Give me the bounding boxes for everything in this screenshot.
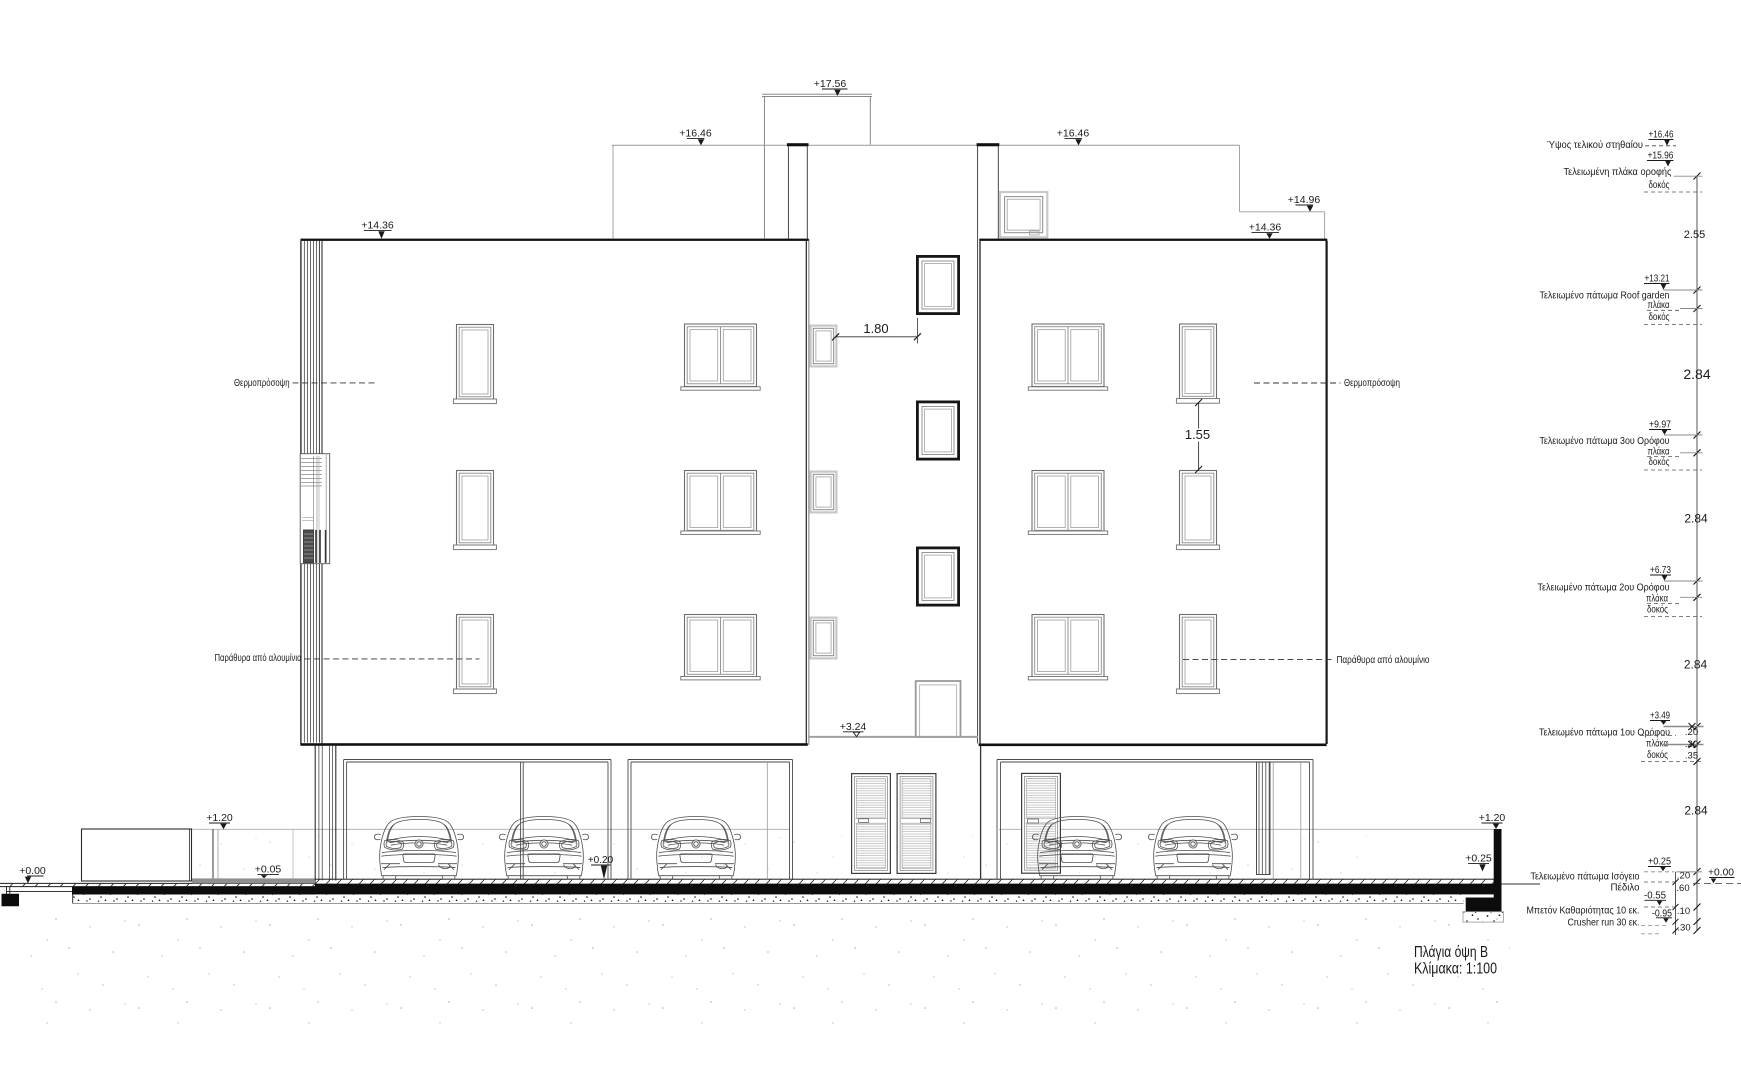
svg-text:Crusher run 30 εκ.: Crusher run 30 εκ. — [1568, 918, 1640, 929]
svg-text:2.84: 2.84 — [1684, 658, 1708, 672]
svg-text:Τελειωμένο πάτωμα 3ου Ορόφου: Τελειωμένο πάτωμα 3ου Ορόφου — [1540, 435, 1670, 447]
svg-text:2.84: 2.84 — [1684, 804, 1708, 818]
svg-text:+0.25: +0.25 — [1648, 857, 1671, 868]
svg-text:Τελειωμένο πάτωμα 1ου Ορόφου: Τελειωμένο πάτωμα 1ου Ορόφου — [1539, 727, 1670, 739]
svg-text:Τελειωμένη πλάκα οροφής: Τελειωμένη πλάκα οροφής — [1564, 166, 1672, 178]
svg-text:Μπετόν Καθαριότητας 10 εκ.: Μπετόν Καθαριότητας 10 εκ. — [1527, 905, 1640, 917]
svg-text:2.84: 2.84 — [1684, 512, 1708, 526]
svg-text:.20: .20 — [1685, 727, 1698, 738]
svg-text:δοκός: δοκός — [1649, 456, 1670, 468]
svg-text:Ύψος τελικού στηθαίου: Ύψος τελικού στηθαίου — [1547, 139, 1643, 151]
svg-text:+0.05: +0.05 — [255, 864, 282, 876]
svg-text:+16.46: +16.46 — [1057, 128, 1090, 140]
svg-text:Θερμοπρόσοψη: Θερμοπρόσοψη — [234, 377, 290, 389]
svg-text:+15.96: +15.96 — [1648, 151, 1674, 162]
svg-text:+14.36: +14.36 — [361, 220, 394, 232]
svg-text:Παράθυρα από αλουμίνιο: Παράθυρα από αλουμίνιο — [1337, 654, 1430, 666]
svg-text:.10: .10 — [1677, 906, 1690, 917]
svg-text:Κλίμακα: 1:100: Κλίμακα: 1:100 — [1414, 961, 1497, 978]
svg-text:.30: .30 — [1677, 923, 1690, 934]
svg-text:+13.21: +13.21 — [1645, 274, 1670, 285]
svg-text:Πλάγια όψη Β: Πλάγια όψη Β — [1414, 944, 1488, 961]
svg-text:+0.20: +0.20 — [588, 855, 614, 866]
svg-text:.60: .60 — [1676, 883, 1689, 894]
svg-text:Τελειωμένο πάτωμα Ισόγειο: Τελειωμένο πάτωμα Ισόγειο — [1531, 871, 1640, 883]
svg-text:δοκός: δοκός — [1649, 311, 1670, 323]
svg-text:+0.00: +0.00 — [1708, 867, 1734, 879]
svg-text:δοκός: δοκός — [1647, 749, 1668, 761]
svg-text:2.84: 2.84 — [1683, 366, 1710, 382]
svg-text:+3.24: +3.24 — [840, 721, 867, 733]
svg-text:+14.36: +14.36 — [1249, 222, 1282, 234]
svg-text:+6.73: +6.73 — [1650, 565, 1671, 576]
svg-text:+14.96: +14.96 — [1288, 194, 1321, 206]
svg-text:πλάκα: πλάκα — [1646, 738, 1668, 750]
svg-text:Παράθυρα από αλουμίνια: Παράθυρα από αλουμίνια — [215, 652, 302, 664]
svg-text:πλάκα: πλάκα — [1646, 593, 1668, 605]
svg-text:+1.20: +1.20 — [206, 812, 233, 824]
svg-text:+0.25: +0.25 — [1465, 853, 1492, 865]
svg-text:.35: .35 — [1685, 751, 1698, 762]
svg-text:+16.46: +16.46 — [679, 128, 712, 140]
svg-text:Πέδιλο: Πέδιλο — [1611, 882, 1640, 894]
svg-text:+17.56: +17.56 — [814, 78, 847, 90]
svg-text:+9.97: +9.97 — [1649, 420, 1671, 431]
svg-text:1.80: 1.80 — [863, 321, 888, 336]
svg-text:+1.20: +1.20 — [1479, 812, 1506, 824]
svg-text:δοκός: δοκός — [1647, 604, 1668, 616]
svg-text:πλάκα: πλάκα — [1648, 446, 1670, 458]
svg-text:+3.49: +3.49 — [1650, 711, 1670, 722]
svg-text:Τελειωμένο πάτωμα 2ου Ορόφου: Τελειωμένο πάτωμα 2ου Ορόφου — [1538, 582, 1670, 594]
svg-text:2.55: 2.55 — [1684, 229, 1705, 241]
svg-text:δοκός: δοκός — [1649, 179, 1670, 191]
svg-text:Θερμοπρόσοψη: Θερμοπρόσοψη — [1344, 377, 1400, 389]
svg-text:+0.00: +0.00 — [19, 865, 46, 877]
svg-text:1.55: 1.55 — [1185, 427, 1210, 442]
svg-text:πλάκα: πλάκα — [1648, 299, 1670, 311]
svg-text:.20: .20 — [1677, 871, 1690, 882]
svg-text:+16.46: +16.46 — [1649, 130, 1674, 141]
svg-text:-0.55: -0.55 — [1644, 890, 1666, 901]
